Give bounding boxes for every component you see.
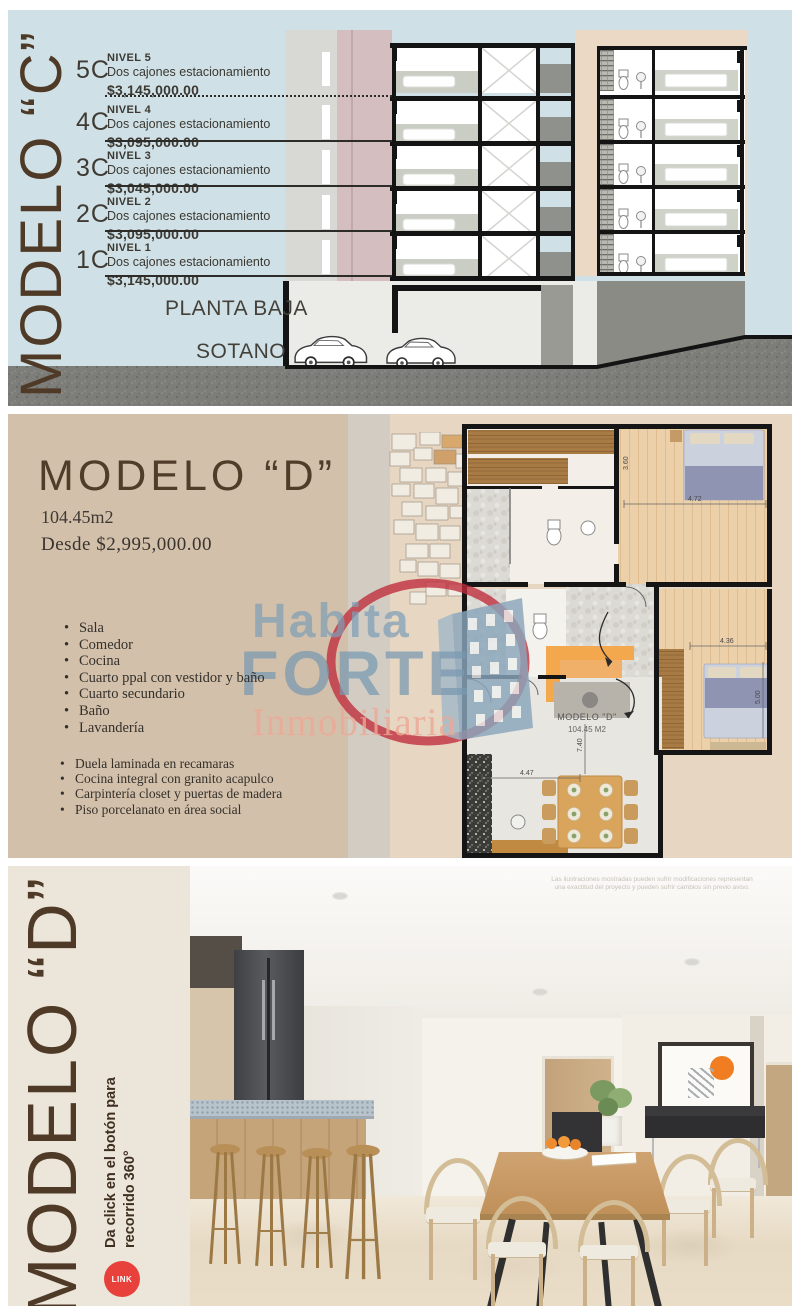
level-divider (105, 275, 392, 277)
floor-code: 2C (76, 200, 110, 229)
dim-bed2-height: 5.00 (755, 690, 762, 704)
cta-line2: recorrido 360° (121, 1077, 140, 1248)
feature-item: Comedor (62, 637, 265, 654)
art-sketch (688, 1068, 714, 1098)
plan-area-label: 104.45 M2 (568, 725, 606, 734)
level-divider (105, 140, 392, 142)
section-d-title: MODELO “D” (38, 452, 336, 501)
level-divider (105, 185, 392, 187)
floor-nivel: NIVEL 3 (107, 150, 296, 162)
dim-bed2-width: 4.36 (720, 638, 734, 645)
bar-stool (346, 1145, 380, 1279)
orange (558, 1136, 570, 1148)
section-d-area: 104.45m2 (41, 507, 114, 528)
floor-nivel: NIVEL 4 (107, 104, 296, 116)
disclaimer-line1: Las ilustraciones mostradas pueden sufri… (526, 876, 778, 884)
interior-render: Las ilustraciones mostradas pueden sufri… (190, 866, 792, 1306)
orange (570, 1139, 581, 1150)
render-disclaimer: Las ilustraciones mostradas pueden sufri… (526, 876, 778, 892)
fridge (234, 950, 304, 1118)
feature-item: Cocina (62, 653, 265, 670)
ceiling-light (532, 988, 548, 996)
dim-bed1-height: 3.60 (623, 456, 630, 470)
dining-chair (578, 1200, 640, 1306)
finishes-list: Duela laminada en recamaras Cocina integ… (58, 756, 282, 817)
feature-item: Lavandería (62, 720, 265, 737)
floor-row-5c: 5C NIVEL 5 Dos cajones estacionamiento $… (76, 52, 296, 98)
feature-item: Cuarto ppal con vestidor y baño (62, 670, 265, 687)
floor-row-3c: 3C NIVEL 3 Dos cajones estacionamiento $… (76, 150, 296, 196)
dining-chair (424, 1158, 482, 1280)
finish-item: Piso porcelanato en área social (58, 802, 282, 817)
cta-line1: Da click en el botón para (102, 1077, 121, 1248)
plan-label: MODELO "D" (557, 712, 616, 722)
level-divider-dotted (105, 95, 392, 97)
finish-item: Duela laminada en recamaras (58, 756, 282, 771)
floor-desc: Dos cajones estacionamiento (107, 255, 296, 269)
dim-living-width: 4.47 (520, 770, 534, 777)
floor-price: $3,045,000.00 (107, 180, 296, 196)
floor-code: 1C (76, 246, 110, 275)
floor-desc: Dos cajones estacionamiento (107, 209, 296, 223)
floor-desc: Dos cajones estacionamiento (107, 117, 296, 131)
dining-chair (486, 1196, 548, 1306)
finish-item: Carpintería closet y puertas de madera (58, 786, 282, 801)
bar-stool (256, 1146, 286, 1266)
floor-code: 5C (76, 56, 110, 85)
level-divider (105, 230, 392, 232)
orange (546, 1138, 557, 1149)
floor-nivel: NIVEL 5 (107, 52, 296, 64)
ceiling-light (332, 892, 348, 900)
feature-item: Baño (62, 703, 265, 720)
floor-price: $3,095,000.00 (107, 226, 296, 242)
planta-baja-label: PLANTA BAJA (165, 297, 308, 321)
section-d-price: Desde $2,995,000.00 (41, 534, 212, 556)
backsplash (190, 988, 234, 1106)
dim-bed1-width: 4.72 (688, 496, 702, 503)
finish-item: Cocina integral con granito acapulco (58, 771, 282, 786)
brochure-page: MODELO “C” 5C NIVEL 5 Dos cajones estaci… (0, 0, 800, 1306)
floor-code: 3C (76, 154, 110, 183)
floor-desc: Dos cajones estacionamiento (107, 163, 296, 177)
floor-row-4c: 4C NIVEL 4 Dos cajones estacionamiento $… (76, 104, 296, 150)
floor-price: $3,095,000.00 (107, 134, 296, 150)
cta-360-text: Da click en el botón para recorrido 360° (102, 1077, 140, 1248)
features-list: Sala Comedor Cocina Cuarto ppal con vest… (62, 620, 265, 736)
floor-code: 4C (76, 108, 110, 137)
door-right (766, 1062, 792, 1205)
link-360-button[interactable]: LINK (104, 1261, 140, 1297)
feature-item: Sala (62, 620, 265, 637)
dim-living-height: 7.40 (577, 738, 584, 752)
bar-stool (302, 1148, 332, 1268)
floor-row-2c: 2C NIVEL 2 Dos cajones estacionamiento $… (76, 196, 296, 242)
floor-nivel: NIVEL 2 (107, 196, 296, 208)
island-countertop (190, 1100, 374, 1119)
ceiling-light (684, 958, 700, 966)
bench-right-seat (645, 1116, 765, 1138)
logo-tagline-text: Inmobiliaria (252, 700, 457, 745)
sotano-label: SOTANO (196, 340, 286, 364)
section-c-title: MODELO “C” (8, 30, 75, 398)
floor-row-1c: 1C NIVEL 1 Dos cajones estacionamiento $… (76, 242, 296, 288)
bar-stool (210, 1144, 240, 1264)
feature-item: Cuarto secundario (62, 686, 265, 703)
floor-nivel: NIVEL 1 (107, 242, 296, 254)
render-section-title: MODELO “D” (12, 876, 92, 1306)
floor-desc: Dos cajones estacionamiento (107, 65, 296, 79)
disclaimer-line2: una exactitud del proyecto y pueden sufr… (526, 884, 778, 892)
